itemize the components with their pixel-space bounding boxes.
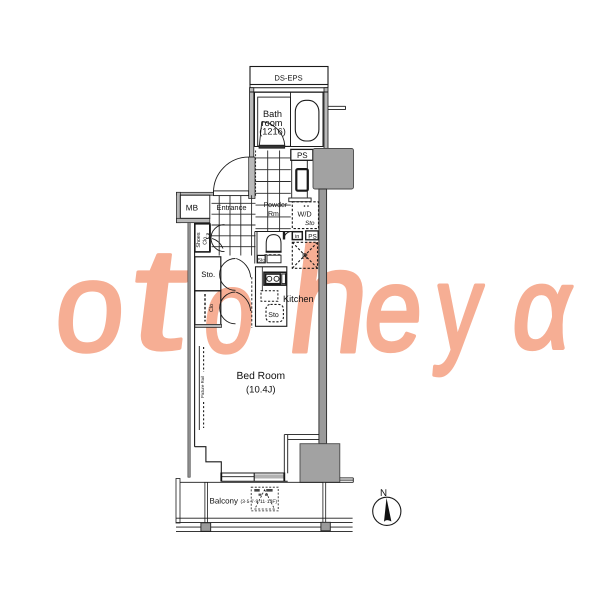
svg-text:N: N (380, 488, 387, 499)
svg-text:Sto: Sto (258, 258, 266, 264)
svg-text:in: in (295, 233, 299, 240)
svg-text:o: o (50, 235, 132, 379)
svg-text:Kitchen: Kitchen (283, 294, 314, 304)
svg-text:DS-EPS: DS-EPS (274, 73, 302, 82)
svg-text:Balcony: Balcony (210, 497, 238, 506)
svg-text:Rm: Rm (268, 211, 279, 218)
svg-text:R: R (302, 252, 308, 261)
svg-text:Bed Room: Bed Room (236, 371, 285, 382)
svg-text:Sto: Sto (305, 220, 315, 227)
svg-text:e: e (359, 243, 428, 376)
svg-text:Clo: Clo (209, 304, 215, 312)
svg-text:Picture Rail: Picture Rail (200, 376, 205, 398)
svg-text:PS: PS (297, 151, 308, 160)
svg-text:Sto.: Sto. (201, 270, 215, 279)
svg-text:MB: MB (186, 203, 199, 212)
svg-text:Shoes: Shoes (196, 232, 202, 248)
svg-text:Clo.: Clo. (203, 235, 209, 245)
svg-text:(10.4J): (10.4J) (246, 384, 276, 395)
svg-text:Entrance: Entrance (217, 203, 247, 212)
svg-text:PS: PS (308, 233, 317, 240)
svg-text:Sto: Sto (268, 312, 279, 319)
svg-text:W/D: W/D (298, 210, 312, 219)
svg-text:Powder: Powder (264, 201, 288, 209)
